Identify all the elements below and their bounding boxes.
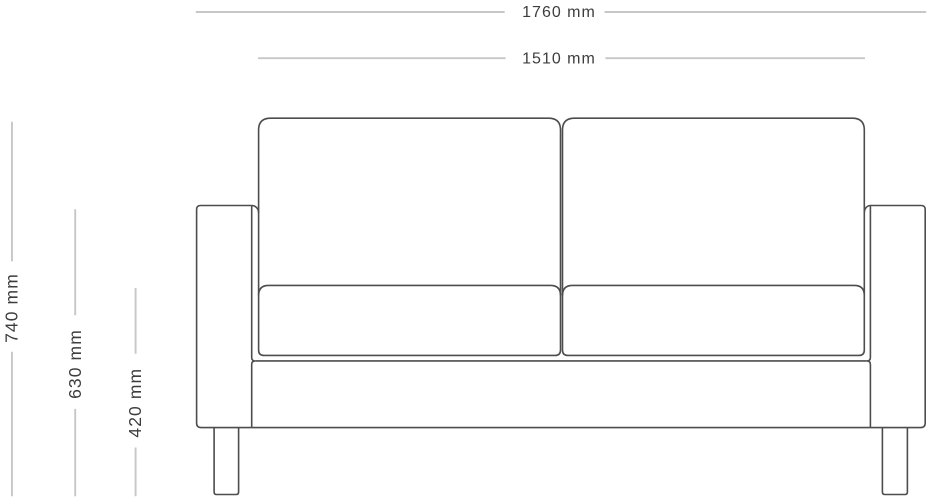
svg-text:1760 mm: 1760 mm	[522, 4, 596, 21]
svg-text:740 mm: 740 mm	[2, 273, 22, 343]
svg-text:630 mm: 630 mm	[65, 329, 85, 399]
svg-text:420 mm: 420 mm	[125, 368, 145, 438]
svg-text:1510 mm: 1510 mm	[522, 50, 596, 67]
